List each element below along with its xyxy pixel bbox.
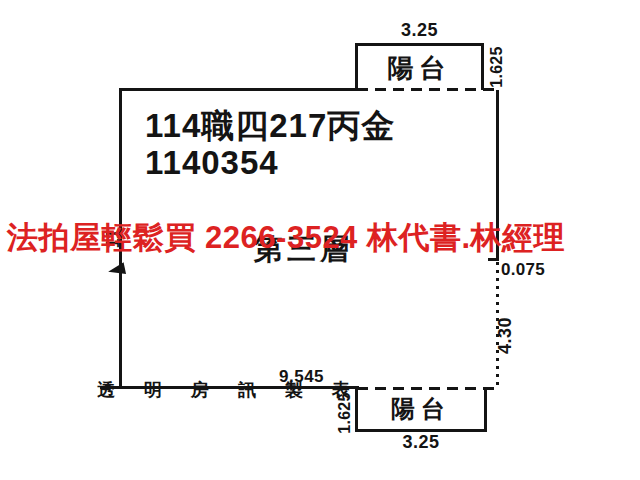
dim-balcony-top-depth: 1.625	[488, 35, 506, 99]
watermark-text: 透 明 房 訊 製 表	[97, 378, 362, 402]
dim-balcony-bottom-width: 3.25	[355, 432, 487, 453]
balcony-top: 陽台	[355, 43, 484, 90]
wall-top-solid	[119, 88, 359, 91]
dim-balcony-top-width: 3.25	[355, 20, 484, 41]
balcony-bottom: 陽台	[355, 389, 487, 432]
case-number: 114職四217丙金	[145, 107, 395, 144]
dim-right-height: 4.30	[495, 304, 516, 368]
dimension-arrow-icon	[107, 262, 126, 277]
file-number: 1140354	[145, 144, 279, 181]
balcony-bottom-label: 陽台	[391, 393, 451, 425]
ad-overlay-text: 法拍屋輕鬆買 2266-3524 林代書.林經理	[7, 217, 565, 259]
floorplan-canvas: 陽台 3.25 1.625 陽台 3.25 1.625 114職四217丙金 1…	[0, 0, 640, 480]
balcony-top-label: 陽台	[388, 51, 452, 86]
dim-right-offset: 0.075	[501, 260, 545, 280]
